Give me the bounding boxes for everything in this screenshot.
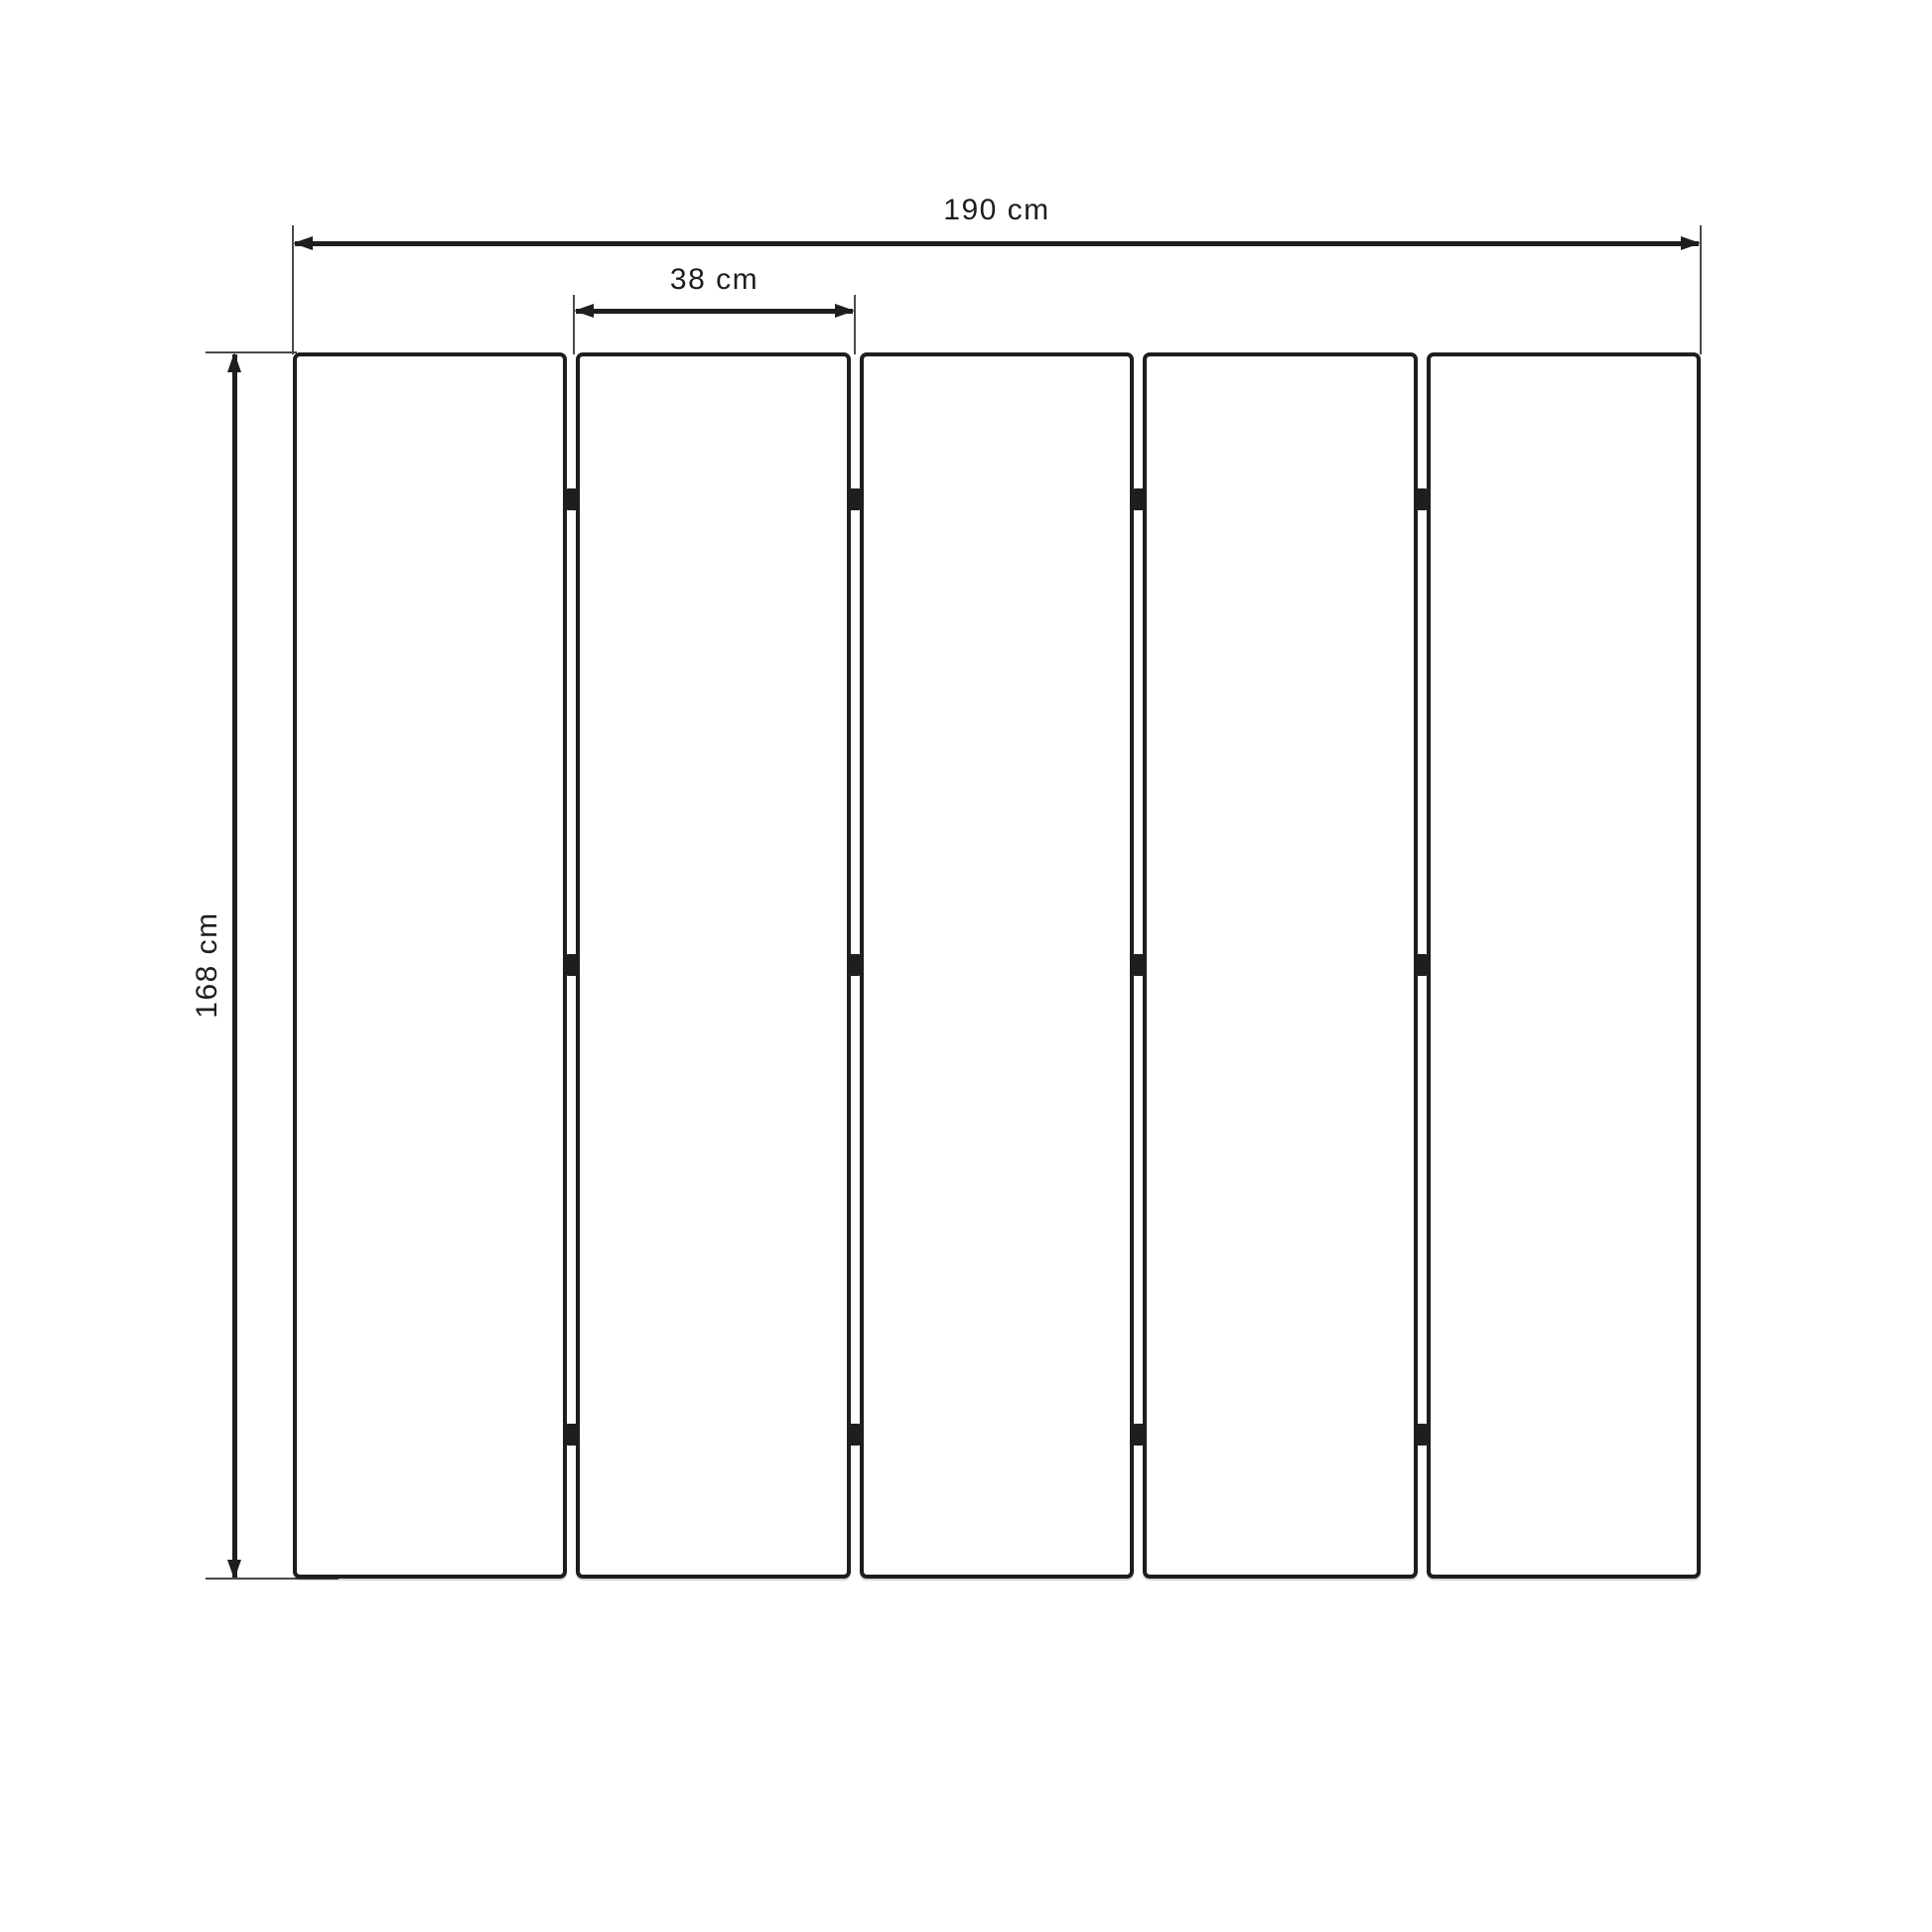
extension-line [292, 225, 294, 354]
hinge-mark [1417, 488, 1427, 510]
extension-line [573, 295, 575, 354]
panels-row [293, 352, 1701, 1579]
arrow-left-icon [293, 236, 313, 250]
arrow-down-icon [227, 1560, 241, 1580]
hinge-mark [1134, 1424, 1144, 1446]
panel-4 [1143, 352, 1417, 1579]
hinge-mark [850, 1424, 860, 1446]
hinge-mark [850, 954, 860, 976]
overall-width-label: 190 cm [295, 193, 1699, 228]
hinge-mark [1134, 954, 1144, 976]
height-dimension-line [232, 354, 237, 1578]
diagram-canvas: 190 cm 38 cm 168 cm [0, 0, 1932, 1932]
panel-1 [293, 352, 567, 1579]
arrow-right-icon [835, 304, 855, 318]
hinge-mark [567, 1424, 577, 1446]
panel-5 [1427, 352, 1701, 1579]
hinge-mark [1417, 1424, 1427, 1446]
hinge-mark [850, 488, 860, 510]
arrow-right-icon [1681, 236, 1701, 250]
extension-line [1700, 225, 1702, 354]
overall-width-dimension-line [295, 241, 1699, 246]
arrow-up-icon [227, 352, 241, 372]
hinge-mark [567, 488, 577, 510]
panel-width-dimension-line [576, 309, 853, 314]
hinge-mark [1134, 488, 1144, 510]
extension-line [206, 351, 297, 353]
arrow-left-icon [574, 304, 594, 318]
extension-line [854, 295, 856, 354]
panel-2 [576, 352, 850, 1579]
hinge-mark [1417, 954, 1427, 976]
panel-width-label: 38 cm [576, 262, 853, 298]
hinge-mark [567, 954, 577, 976]
panel-3 [860, 352, 1134, 1579]
height-label: 168 cm [190, 896, 225, 1035]
